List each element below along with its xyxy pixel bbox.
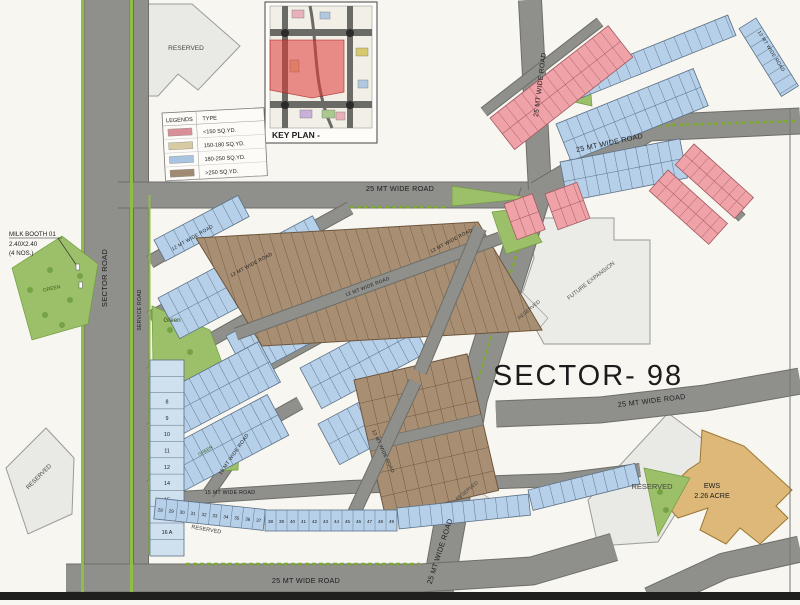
plot-number: 16 A: [162, 530, 173, 536]
roundabout: [346, 29, 354, 37]
keyplan-plot: [320, 12, 330, 19]
milk-booth-label: (4 NOS.): [9, 250, 33, 257]
plot-number: 41: [301, 519, 307, 524]
legend-swatch: [170, 169, 194, 177]
keyplan-plot: [292, 10, 304, 18]
plot-number: 10: [164, 432, 170, 438]
keyplan-plot: [336, 112, 345, 120]
plot-number: 14: [164, 481, 170, 487]
plot-number: 40: [290, 519, 296, 524]
plot-number: 34: [223, 514, 229, 520]
key-plan: KEY PLAN -: [265, 2, 377, 143]
roundabout: [346, 101, 354, 109]
plot-number: 11: [164, 449, 170, 455]
keyplan-plot: [358, 80, 368, 88]
tree: [59, 322, 65, 328]
milk-booth-label: MILK BOOTH 01: [9, 231, 56, 238]
tree: [77, 273, 83, 279]
tree: [187, 349, 193, 355]
plot-number: 35: [234, 515, 240, 521]
legend-swatch: [168, 128, 192, 136]
tree: [67, 297, 73, 303]
reserved-area-bottomleft: [6, 428, 74, 534]
keyplan-plot: [356, 48, 368, 56]
tree: [27, 287, 33, 293]
reserved-label: RESERVED: [191, 524, 222, 535]
plot-number: 47: [367, 519, 373, 524]
legend: LEGENDSTYPE<150 SQ.YD.150-180 SQ.YD.180-…: [162, 108, 267, 181]
road-label: 15 MT WIDE ROAD: [205, 490, 256, 496]
keyplan-plot: [322, 110, 335, 118]
left-plot-column: 8910111214151616 A: [150, 360, 184, 556]
green-label: Green: [163, 317, 181, 324]
plot-number: 45: [345, 519, 351, 524]
plot-number: 12: [164, 465, 170, 471]
sector-title: SECTOR- 98: [493, 360, 683, 392]
plot-number: 39: [279, 519, 285, 524]
tree: [42, 312, 48, 318]
legend-swatch: [169, 155, 193, 163]
reserved-label: RESERVED: [631, 482, 673, 491]
plot-number: 30: [179, 510, 185, 516]
plot-number: 46: [356, 519, 362, 524]
plot-number: 31: [190, 511, 196, 517]
plot-number: 49: [389, 519, 395, 524]
site-plan-map: 8910111214151616 A2829303132333435363738…: [0, 0, 800, 600]
plot-number: 29: [168, 508, 174, 514]
road-label: 25 MT WIDE ROAD: [272, 576, 340, 585]
map-border-bottom: [0, 592, 800, 600]
ews-label: EWS: [704, 481, 721, 490]
tree: [663, 507, 669, 513]
road-label: 25 MT WIDE ROAD: [366, 184, 434, 193]
tree: [167, 327, 173, 333]
legend-swatch: [169, 142, 193, 150]
plot-number: 48: [378, 519, 384, 524]
ews-label: 2.26 ACRE: [694, 491, 730, 500]
plot-number: 32: [201, 512, 207, 518]
keyplan-plot: [300, 110, 312, 118]
plot-number: 33: [212, 513, 218, 519]
plot-number: 44: [334, 519, 340, 524]
road-label: SECTOR ROAD: [100, 249, 109, 307]
keyplan-highlight: [270, 40, 344, 98]
plot-number: 9: [166, 416, 169, 422]
tree: [47, 267, 53, 273]
plot-number: 37: [256, 518, 262, 524]
roundabout: [281, 29, 289, 37]
plot-number: 38: [268, 519, 274, 524]
sector-plan-svg: 8910111214151616 A2829303132333435363738…: [0, 0, 800, 600]
keyplan-label: KEY PLAN -: [272, 130, 320, 140]
legend-header-type: TYPE: [202, 116, 217, 123]
plot-number: 43: [323, 519, 329, 524]
plot-strip: 383940414243444546474849: [265, 510, 397, 531]
plot-number: 28: [157, 507, 163, 513]
plot-number: 8: [166, 400, 169, 406]
reserved-label: RESERVED: [168, 45, 204, 52]
milk-booth-label: 2.40X2.40: [9, 241, 38, 248]
plot-number: 36: [245, 516, 251, 522]
road-label: SERVICE ROAD: [137, 289, 143, 330]
plot-number: 42: [312, 519, 318, 524]
roundabout: [281, 101, 289, 109]
plot-strip: [739, 18, 798, 96]
